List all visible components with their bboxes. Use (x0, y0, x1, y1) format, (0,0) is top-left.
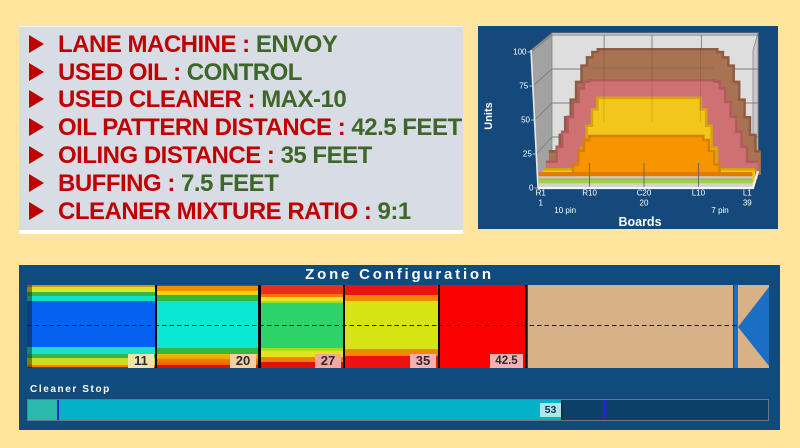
svg-text:C20: C20 (637, 189, 652, 198)
svg-text:7 pin: 7 pin (711, 206, 728, 215)
svg-text:1: 1 (538, 199, 543, 208)
svg-text:10 pin: 10 pin (554, 206, 576, 215)
svg-text:L1: L1 (743, 189, 752, 198)
svg-text:Units: Units (483, 102, 495, 130)
svg-text:50: 50 (521, 116, 530, 125)
svg-text:0: 0 (529, 184, 534, 193)
svg-text:R1: R1 (536, 189, 547, 198)
svg-text:100: 100 (513, 48, 527, 57)
svg-text:39: 39 (743, 199, 752, 208)
svg-text:L10: L10 (692, 189, 706, 198)
svg-text:25: 25 (523, 150, 532, 159)
svg-text:R10: R10 (582, 189, 597, 198)
svg-text:75: 75 (519, 82, 528, 91)
svg-text:20: 20 (640, 199, 649, 208)
svg-text:Boards: Boards (618, 215, 661, 229)
